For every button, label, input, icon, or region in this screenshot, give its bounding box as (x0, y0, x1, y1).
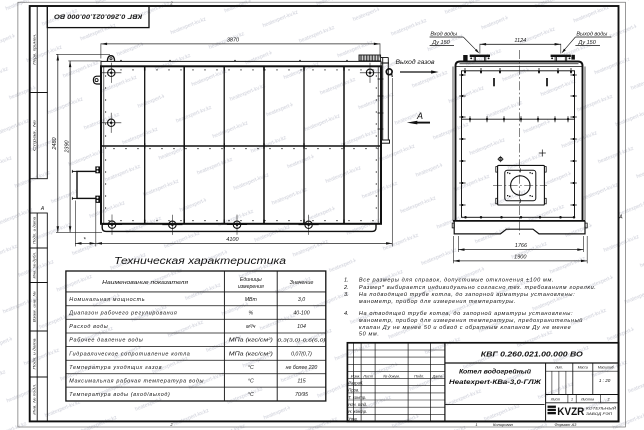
svg-text:не более 220: не более 220 (286, 365, 318, 371)
svg-text:Максимальная рабочая температу: Максимальная рабочая температура воды (69, 378, 204, 384)
svg-text:Рабочее давление воды: Рабочее давление воды (69, 338, 143, 344)
svg-text:МПа (кгс/см²): МПа (кгс/см²) (229, 338, 273, 344)
svg-text:м³/ч: м³/ч (246, 324, 256, 330)
svg-text:Лист: Лист (550, 398, 560, 402)
svg-text:Масса: Масса (578, 366, 588, 370)
svg-text:4.: 4. (344, 311, 349, 317)
svg-text:Расход воды: Расход воды (69, 324, 108, 330)
svg-text:Подп.: Подп. (414, 374, 424, 378)
svg-text:На подводящей трубе котла, до: На подводящей трубе котла, до запорной а… (359, 291, 575, 298)
svg-text:1900: 1900 (514, 255, 527, 261)
svg-text:клапан Ду не менее 50 и обвод: клапан Ду не менее 50 и обвод с обратным… (359, 325, 571, 331)
svg-text:1766: 1766 (515, 243, 528, 249)
svg-text:Подп. и дата: Подп. и дата (32, 338, 36, 369)
svg-text:Перв. примен.: Перв. примен. (32, 34, 36, 65)
svg-text:Лист: Лист (362, 374, 373, 378)
svg-text:3,0: 3,0 (298, 297, 305, 303)
svg-text:манометр, прибор для измерения: манометр, прибор для измерения температу… (359, 299, 516, 305)
svg-text:Вход воды: Вход воды (430, 31, 457, 37)
svg-text:Формат А3: Формат А3 (554, 422, 577, 427)
svg-text:КОТЕЛЬНЫЙ: КОТЕЛЬНЫЙ (586, 405, 616, 410)
svg-text:Листов: Листов (580, 398, 594, 402)
svg-text:КВГ 0.260.021.00.000 ВО: КВГ 0.260.021.00.000 ВО (53, 12, 142, 19)
svg-text:104: 104 (297, 324, 306, 330)
svg-text:0,3(3,0)-0,6(6,0): 0,3(3,0)-0,6(6,0) (278, 338, 326, 344)
svg-text:2.: 2. (343, 285, 349, 291)
svg-text:Единицы: Единицы (240, 277, 262, 283)
svg-text:1 : 20: 1 : 20 (599, 378, 611, 383)
svg-text:Температура уходящих газов: Температура уходящих газов (69, 365, 162, 371)
svg-text:°С: °С (248, 378, 254, 384)
svg-text:Ду 150: Ду 150 (577, 40, 596, 46)
svg-text:Гидравлическое сопротивление к: Гидравлическое сопротивление котла (69, 351, 190, 357)
svg-text:Температура воды (вход/выход): Температура воды (вход/выход) (69, 392, 170, 398)
svg-text:Утв.: Утв. (348, 416, 358, 421)
svg-text:Н. контр.: Н. контр. (348, 409, 367, 414)
svg-text:%: % (248, 311, 253, 317)
svg-text:Разраб.: Разраб. (348, 381, 363, 386)
svg-text:МВт: МВт (245, 297, 258, 303)
svg-text:Все размеры для справок, допус: Все размеры для справок, допустимые откл… (359, 278, 554, 284)
svg-text:КВГ 0.260.021.00.000 ВО: КВГ 0.260.021.00.000 ВО (481, 349, 583, 358)
svg-text:Масштаб: Масштаб (598, 366, 614, 370)
svg-text:Ду 150: Ду 150 (431, 40, 450, 46)
svg-text:KVZR: KVZR (557, 406, 584, 418)
svg-text:Значение: Значение (290, 280, 314, 286)
svg-text:ЗАВОД РЭП: ЗАВОД РЭП (586, 411, 612, 416)
svg-text:Справ. №: Справ. № (32, 120, 36, 152)
svg-text:Т. контр.: Т. контр. (348, 395, 366, 400)
svg-text:А: А (40, 206, 45, 212)
svg-text:2: 2 (607, 398, 610, 402)
svg-text:Размер* выбирается индивидуаль: Размер* выбирается индивидуально согласн… (359, 285, 597, 291)
svg-text:Инв. № дубл.: Инв. № дубл. (32, 252, 36, 279)
svg-text:Выход газов: Выход газов (396, 59, 436, 66)
svg-text:1124: 1124 (514, 38, 526, 44)
svg-text:Heatexpert-КВа-3,0-ГЛЖ: Heatexpert-КВа-3,0-ГЛЖ (449, 379, 542, 386)
svg-text:Копировал: Копировал (493, 422, 514, 427)
svg-text:0,07(0,7): 0,07(0,7) (291, 351, 312, 357)
svg-text:Лит.: Лит. (554, 366, 563, 370)
svg-text:Нач. отд.: Нач. отд. (348, 402, 367, 407)
svg-text:115: 115 (297, 378, 305, 384)
svg-text:манометр, прибор для измерения: манометр, прибор для измерения температу… (359, 317, 583, 324)
svg-text:2480: 2480 (52, 136, 58, 150)
svg-text:А: А (618, 214, 623, 220)
svg-text:40-100: 40-100 (293, 311, 309, 317)
svg-text:Инв. № подл.: Инв. № подл. (32, 384, 36, 415)
svg-text:Подп. и дата: Подп. и дата (32, 217, 36, 244)
svg-text:50 мм.: 50 мм. (359, 332, 380, 338)
svg-text:На отводящей трубе котла, до з: На отводящей трубе котла, до запорной ар… (359, 310, 573, 317)
svg-text:измерения: измерения (238, 284, 264, 290)
svg-text:Взам. инв. №: Взам. инв. № (32, 291, 36, 322)
svg-text:Диапазон рабочего регулировани: Диапазон рабочего регулирования (68, 311, 177, 317)
svg-text:Номинальная мощность: Номинальная мощность (69, 297, 145, 303)
svg-text:Выход воды: Выход воды (576, 31, 607, 37)
svg-text:Техническая характеристика: Техническая характеристика (114, 256, 287, 267)
svg-text:1: 1 (571, 398, 573, 402)
svg-text:Наименование показателя: Наименование показателя (102, 280, 188, 286)
svg-text:А: А (416, 111, 423, 121)
svg-text:70/95: 70/95 (295, 392, 308, 398)
svg-text:°С: °С (248, 365, 254, 371)
svg-text:Котел водогрейный: Котел водогрейный (459, 368, 531, 376)
svg-text:Дата: Дата (431, 374, 442, 378)
svg-text:3.: 3. (344, 292, 349, 298)
svg-text:1: 1 (475, 422, 477, 427)
svg-text:2390: 2390 (65, 139, 71, 153)
svg-text:Изм.: Изм. (351, 374, 361, 378)
svg-text:3870: 3870 (227, 37, 240, 43)
svg-text:Пров.: Пров. (348, 388, 359, 393)
svg-text:1.: 1. (344, 278, 349, 284)
svg-text:°С: °С (248, 392, 254, 398)
svg-text:№ докум.: № докум. (383, 374, 400, 378)
svg-text:МПа (кгс/см²): МПа (кгс/см²) (229, 351, 273, 357)
svg-text:4100: 4100 (226, 237, 239, 243)
